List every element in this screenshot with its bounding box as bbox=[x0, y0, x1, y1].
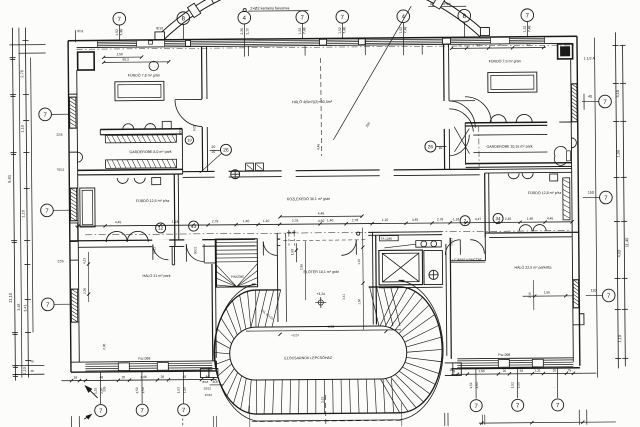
svg-text:4,21: 4,21 bbox=[82, 258, 86, 264]
svg-text:79/21: 79/21 bbox=[152, 247, 156, 255]
svg-text:1,52: 1,52 bbox=[135, 387, 139, 393]
svg-text:PINCÉBE: PINCÉBE bbox=[231, 274, 244, 279]
svg-text:1,52: 1,52 bbox=[399, 27, 403, 34]
svg-text:1,00: 1,00 bbox=[616, 150, 620, 157]
svg-text:90/21: 90/21 bbox=[193, 246, 197, 254]
svg-text:2,78: 2,78 bbox=[292, 219, 299, 223]
svg-text:1,10: 1,10 bbox=[21, 125, 25, 132]
svg-text:1,50: 1,50 bbox=[357, 298, 361, 304]
svg-text:150: 150 bbox=[588, 191, 594, 195]
svg-text:1,10: 1,10 bbox=[618, 335, 622, 342]
svg-text:8/18: 8/18 bbox=[202, 380, 208, 384]
svg-text:8/11: 8/11 bbox=[77, 29, 83, 33]
svg-text:9,02: 9,02 bbox=[192, 125, 196, 131]
svg-text:44: 44 bbox=[206, 374, 210, 378]
svg-text:34: 34 bbox=[495, 216, 501, 221]
svg-text:4,47: 4,47 bbox=[475, 217, 482, 221]
svg-text:ELŐTÉR 10,1 m² grán: ELŐTÉR 10,1 m² grán bbox=[303, 269, 339, 274]
svg-text:8/13: 8/13 bbox=[156, 26, 163, 30]
svg-text:26: 26 bbox=[428, 144, 434, 150]
svg-text:7,48: 7,48 bbox=[342, 27, 346, 34]
svg-text:5,61: 5,61 bbox=[7, 174, 12, 183]
svg-text:4,45: 4,45 bbox=[412, 218, 419, 222]
svg-text:1,10: 1,10 bbox=[382, 218, 389, 222]
svg-text:3,48: 3,48 bbox=[17, 304, 21, 311]
svg-text:5,16: 5,16 bbox=[616, 90, 620, 97]
svg-text:92: 92 bbox=[459, 43, 463, 47]
svg-text:20: 20 bbox=[122, 375, 126, 379]
svg-text:2,36: 2,36 bbox=[83, 288, 87, 294]
svg-text:2,10: 2,10 bbox=[528, 292, 532, 298]
svg-text:26: 26 bbox=[223, 147, 229, 153]
svg-text:Fsz.098: Fsz.098 bbox=[498, 353, 510, 357]
svg-text:20: 20 bbox=[553, 368, 557, 372]
svg-text:1,18: 1,18 bbox=[453, 217, 460, 221]
svg-text:2,96: 2,96 bbox=[299, 264, 303, 270]
svg-text:11,10: 11,10 bbox=[8, 292, 13, 303]
svg-text:2,36: 2,36 bbox=[240, 28, 244, 35]
svg-text:2,45: 2,45 bbox=[505, 217, 512, 221]
svg-text:4,45: 4,45 bbox=[547, 216, 554, 220]
svg-text:20: 20 bbox=[503, 369, 507, 373]
svg-text:1,31: 1,31 bbox=[534, 369, 540, 373]
svg-text:FÜRDŐ 12,8 m² p/sz: FÜRDŐ 12,8 m² p/sz bbox=[528, 190, 562, 195]
svg-text:1,10: 1,10 bbox=[357, 258, 361, 264]
svg-text:90/21: 90/21 bbox=[178, 127, 182, 135]
svg-text:46: 46 bbox=[30, 369, 34, 373]
svg-text:–: – bbox=[554, 385, 556, 389]
svg-text:7,48: 7,48 bbox=[527, 25, 531, 32]
svg-text:2,92: 2,92 bbox=[321, 397, 325, 403]
svg-text:3,41: 3,41 bbox=[23, 305, 27, 312]
svg-text:FÜRDŐ 7,9 m² grán: FÜRDŐ 7,9 m² grán bbox=[489, 58, 521, 63]
svg-text:1,40: 1,40 bbox=[243, 219, 250, 223]
svg-text:4,46: 4,46 bbox=[316, 144, 320, 150]
svg-text:4,52: 4,52 bbox=[328, 325, 335, 329]
svg-text:TA 1285: TA 1285 bbox=[381, 237, 393, 241]
svg-text:75: 75 bbox=[568, 368, 572, 372]
svg-text:13: 13 bbox=[191, 224, 197, 229]
svg-text:2,36: 2,36 bbox=[102, 343, 106, 349]
svg-text:22/5: 22/5 bbox=[56, 133, 62, 137]
svg-text:1,50: 1,50 bbox=[116, 52, 122, 56]
svg-text:40: 40 bbox=[588, 95, 592, 99]
svg-text:HÁLÓ 21 m² park: HÁLÓ 21 m² park bbox=[143, 273, 171, 278]
svg-text:18: 18 bbox=[74, 376, 78, 380]
svg-text:18/12: 18/12 bbox=[204, 386, 212, 390]
svg-text:1,52: 1,52 bbox=[298, 27, 302, 34]
svg-text:2,78: 2,78 bbox=[352, 218, 359, 222]
svg-text:1,50: 1,50 bbox=[183, 387, 187, 393]
svg-text:1,48: 1,48 bbox=[140, 375, 146, 379]
svg-text:81: 81 bbox=[477, 43, 481, 47]
svg-text:12/12: 12/12 bbox=[205, 393, 213, 397]
svg-text:1,40: 1,40 bbox=[327, 218, 334, 222]
svg-text:18: 18 bbox=[452, 369, 456, 373]
svg-text:7,48: 7,48 bbox=[403, 27, 407, 34]
svg-text:1,52: 1,52 bbox=[177, 387, 181, 393]
svg-text:43: 43 bbox=[527, 43, 531, 47]
svg-text:1,52: 1,52 bbox=[115, 29, 119, 36]
svg-text:12: 12 bbox=[158, 226, 164, 231]
svg-text:7,48: 7,48 bbox=[302, 27, 306, 34]
svg-text:1,52: 1,52 bbox=[94, 388, 98, 394]
svg-text:HÁLÓ 22,5 m² parketta: HÁLÓ 22,5 m² parketta bbox=[514, 264, 551, 269]
svg-text:11,40: 11,40 bbox=[624, 237, 629, 248]
svg-text:FÜRDŐ 7,8 m² grán: FÜRDŐ 7,8 m² grán bbox=[128, 72, 160, 77]
svg-text:54: 54 bbox=[520, 369, 524, 373]
svg-text:20: 20 bbox=[211, 145, 215, 149]
svg-text:3/3/: 3/3/ bbox=[212, 380, 218, 384]
svg-text:+3,24: +3,24 bbox=[316, 292, 325, 296]
svg-text:GARDEROBE 8,0 m² park: GARDEROBE 8,0 m² park bbox=[129, 150, 171, 154]
svg-text:KÖZLEKEDŐ 36,1 m² grán: KÖZLEKEDŐ 36,1 m² grán bbox=[287, 196, 330, 201]
svg-text:4,45: 4,45 bbox=[115, 220, 122, 224]
svg-text:1 1/2 A: 1 1/2 A bbox=[584, 57, 596, 61]
svg-text:110: 110 bbox=[591, 289, 597, 293]
svg-text:2,10: 2,10 bbox=[245, 28, 249, 35]
svg-text:1,50: 1,50 bbox=[141, 387, 145, 393]
svg-text:11: 11 bbox=[499, 43, 502, 47]
svg-text:4,03: 4,03 bbox=[617, 250, 621, 257]
svg-text:46: 46 bbox=[30, 360, 34, 364]
svg-text:7,48: 7,48 bbox=[119, 29, 123, 36]
svg-text:1,50: 1,50 bbox=[544, 290, 550, 294]
svg-text:1,50: 1,50 bbox=[516, 382, 520, 388]
svg-text:1,10: 1,10 bbox=[21, 210, 25, 217]
svg-text:4,46: 4,46 bbox=[318, 211, 325, 215]
svg-text:3,41: 3,41 bbox=[342, 294, 346, 300]
svg-text:20: 20 bbox=[161, 375, 165, 379]
svg-text:1,10: 1,10 bbox=[23, 367, 27, 374]
svg-text:2×Ø2 kemény bevonva: 2×Ø2 kemény bevonva bbox=[250, 6, 290, 10]
svg-text:22/5: 22/5 bbox=[57, 259, 63, 263]
svg-text:96,3: 96,3 bbox=[123, 57, 129, 61]
svg-text:1,50: 1,50 bbox=[475, 382, 479, 388]
svg-text:75/11: 75/11 bbox=[57, 168, 65, 172]
svg-text:339: 339 bbox=[103, 386, 107, 392]
svg-text:2,76: 2,76 bbox=[20, 70, 24, 77]
svg-text:HÁLÓ 4(5m²)(2)+50,3m²: HÁLÓ 4(5m²)(2)+50,3m² bbox=[292, 99, 333, 104]
svg-text:1,52: 1,52 bbox=[469, 382, 473, 388]
svg-text:2,78: 2,78 bbox=[437, 217, 444, 221]
svg-text:1,98: 1,98 bbox=[290, 249, 294, 255]
svg-text:FÜRDŐ 12,6 m² p/sz: FÜRDŐ 12,6 m² p/sz bbox=[136, 198, 170, 203]
svg-text:1,40: 1,40 bbox=[527, 217, 534, 221]
svg-text:GARDEROBE 10,15 m² park: GARDEROBE 10,15 m² park bbox=[486, 144, 532, 148]
svg-text:1,18: 1,18 bbox=[172, 220, 179, 224]
svg-text:LEJÁRAT A PINCÉBE: LEJÁRAT A PINCÉBE bbox=[452, 257, 481, 262]
svg-text:1,50: 1,50 bbox=[478, 369, 484, 373]
svg-text:1,10: 1,10 bbox=[263, 219, 270, 223]
svg-text:1,52: 1,52 bbox=[338, 27, 342, 34]
svg-text:1,52: 1,52 bbox=[510, 382, 514, 388]
svg-text:1,52: 1,52 bbox=[523, 25, 527, 32]
svg-text:2,78: 2,78 bbox=[212, 219, 219, 223]
svg-text:+3,24: +3,24 bbox=[291, 333, 299, 337]
svg-text:ELŐCSARNOK LÉPCSŐHÁZ: ELŐCSARNOK LÉPCSŐHÁZ bbox=[284, 355, 333, 360]
svg-text:Fsz.098: Fsz.098 bbox=[138, 356, 150, 360]
